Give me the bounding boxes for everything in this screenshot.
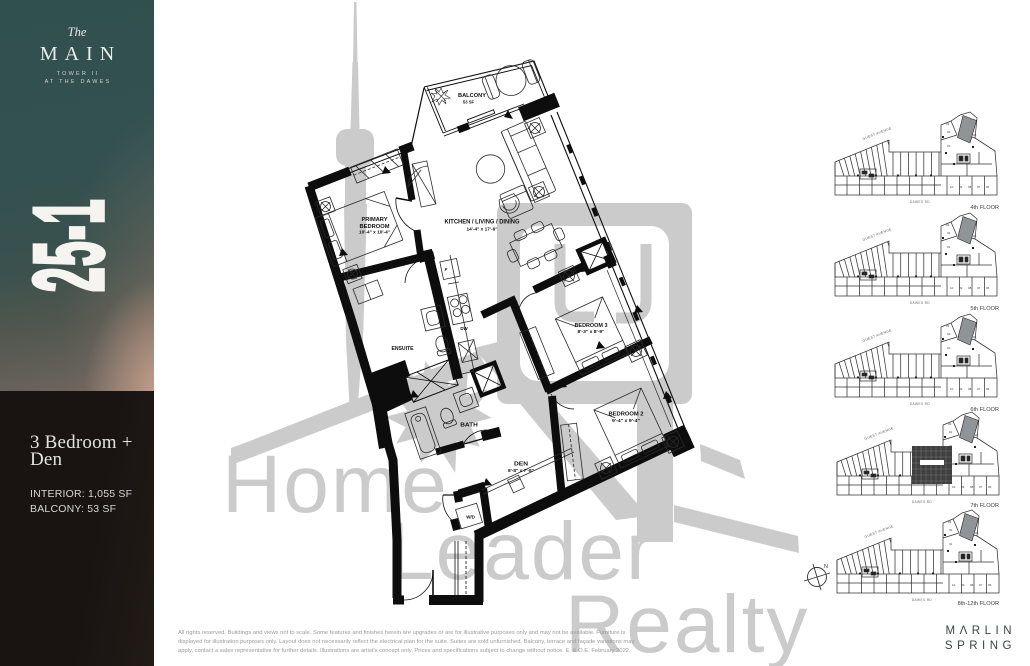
svg-text:F: F [445,267,448,272]
svg-text:BEDROOM 2: BEDROOM 2 [609,412,644,418]
svg-text:6th FLOOR: 6th FLOOR [970,407,999,413]
svg-text:BATH: BATH [460,423,478,429]
svg-text:8'-8" x 7'-8": 8'-8" x 7'-8" [508,468,534,473]
svg-text:9'-4" x 9'-4": 9'-4" x 9'-4" [612,418,640,423]
svg-text:DW: DW [460,326,468,331]
svg-text:8th-12th FLOOR: 8th-12th FLOOR [958,601,999,607]
svg-text:5th FLOOR: 5th FLOOR [970,306,999,312]
svg-text:53 SF: 53 SF [463,100,475,105]
svg-text:KITCHEN / LIVING / DINING: KITCHEN / LIVING / DINING [445,220,520,226]
svg-text:ENSUITE: ENSUITE [392,346,415,352]
svg-text:DEN: DEN [514,462,528,468]
svg-text:4th FLOOR: 4th FLOOR [970,205,999,211]
svg-text:BEDROOM 3: BEDROOM 3 [575,323,608,329]
svg-text:N: N [824,564,828,570]
svg-text:7th FLOOR: 7th FLOOR [970,503,999,509]
svg-text:PRIMARY: PRIMARY [362,217,389,223]
svg-text:14'-4" x 17'-6": 14'-4" x 17'-6" [467,227,498,232]
svg-text:8'-3" x 8'-9": 8'-3" x 8'-9" [578,329,605,334]
svg-text:BALCONY: BALCONY [458,93,486,99]
svg-text:10'-4" x 10'-4": 10'-4" x 10'-4" [359,229,390,234]
svg-text:W/D: W/D [466,515,475,520]
